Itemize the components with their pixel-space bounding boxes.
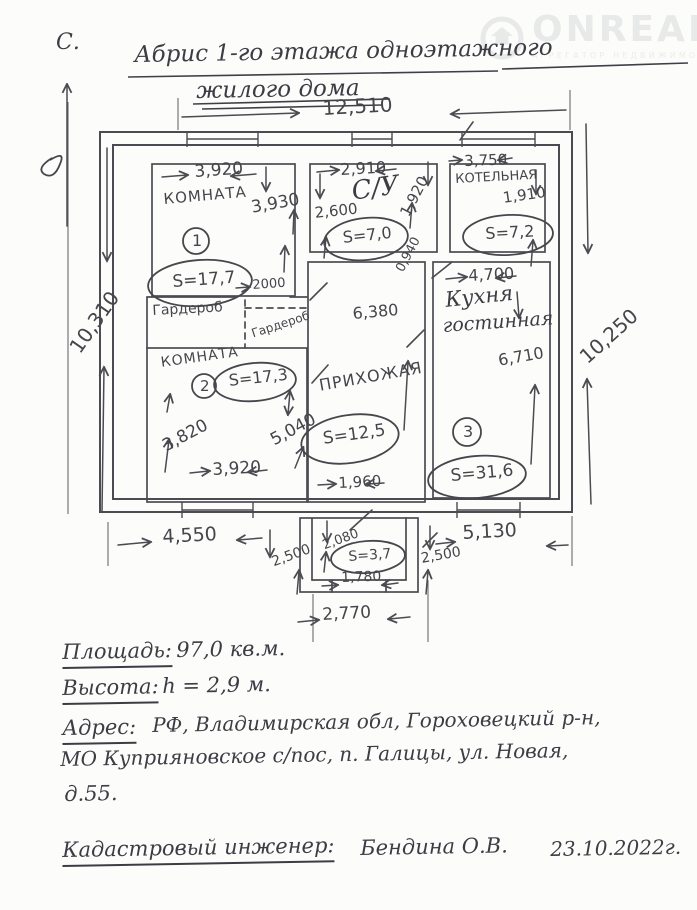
boiler-area: S=7,2 [485,223,535,242]
room1-door-width: 2000 [252,277,286,292]
porch-area: S=3,7 [348,547,392,564]
note-engineer-name: Бендина О.В. [360,833,508,860]
dim-overall-top: 12,510 [322,94,393,118]
room2-number: 2 [200,379,210,394]
plan-drawing [0,0,697,910]
room1-dim-top: 3,920 [194,161,244,181]
kitchen-number: 3 [463,424,473,440]
bottom-dim-right: 5,130 [462,521,517,543]
note-height-value: h = 2,9 м. [162,672,271,698]
boiler-dim-top: 3,750 [464,153,507,169]
note-area-label: Площадь: [62,638,172,669]
bottom-dim-left: 4,550 [162,525,217,547]
pen-scribble [41,156,61,176]
porch-dim-bottom: 2,770 [322,604,371,624]
north-label: С. [56,30,80,55]
hall-dim-top: 6,380 [352,302,399,322]
note-area-value: 97,0 кв.м. [176,636,285,662]
note-address-label: Адрес: [62,715,136,745]
note-engineer-label: Кадастровый инженер: [62,833,335,867]
room1-area: S=17,7 [172,270,236,291]
hall-dim-bottom: 1,960 [338,474,382,491]
wardrobe1-name: Гардероб [152,300,223,318]
note-address-line3: д.55. [64,781,118,806]
note-height-label: Высота: [62,674,159,705]
scanned-floorplan-sheet: ONREALT АГРЕГАТОР НЕДВИЖИМОСТИ [0,0,697,910]
bathroom-dim-left: 2,600 [314,202,358,221]
room2-dim-bottom: 3,920 [212,459,261,479]
room1-number: 1 [192,233,202,249]
porch-dim-inner-bottom: 1,780 [341,570,382,585]
note-date: 23.10.2022г. [550,836,681,861]
